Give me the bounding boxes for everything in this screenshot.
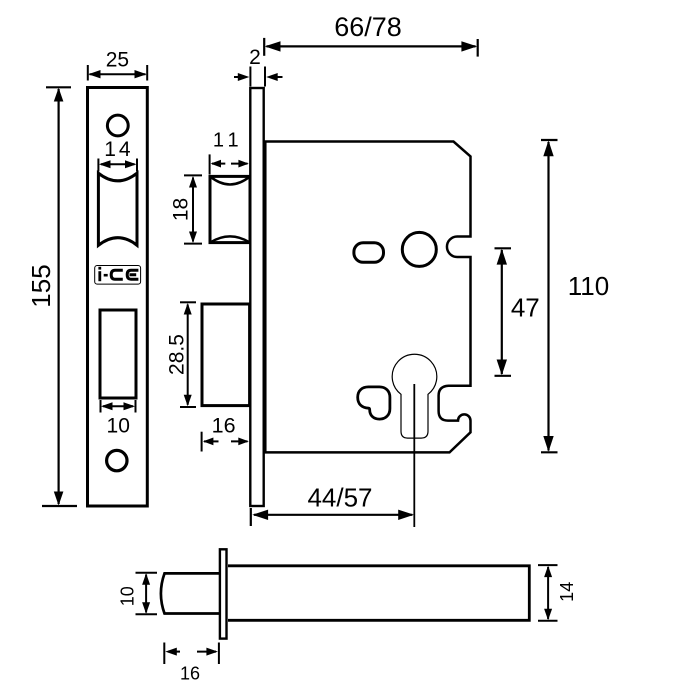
svg-text:47: 47 [511,293,540,323]
svg-text:14: 14 [104,138,133,161]
svg-text:18: 18 [170,198,193,221]
svg-text:66/78: 66/78 [334,12,402,42]
svg-text:28.5: 28.5 [166,334,189,375]
svg-text:10: 10 [118,586,138,606]
svg-text:155: 155 [26,264,56,307]
svg-text:44/57: 44/57 [307,482,372,512]
svg-text:2: 2 [249,46,261,69]
svg-text:25: 25 [106,49,129,72]
svg-text:110: 110 [568,271,609,301]
svg-text:16: 16 [180,664,200,684]
svg-text:11: 11 [213,129,244,151]
svg-text:10: 10 [107,415,130,438]
svg-text:16: 16 [212,414,236,438]
svg-text:14: 14 [557,582,577,602]
